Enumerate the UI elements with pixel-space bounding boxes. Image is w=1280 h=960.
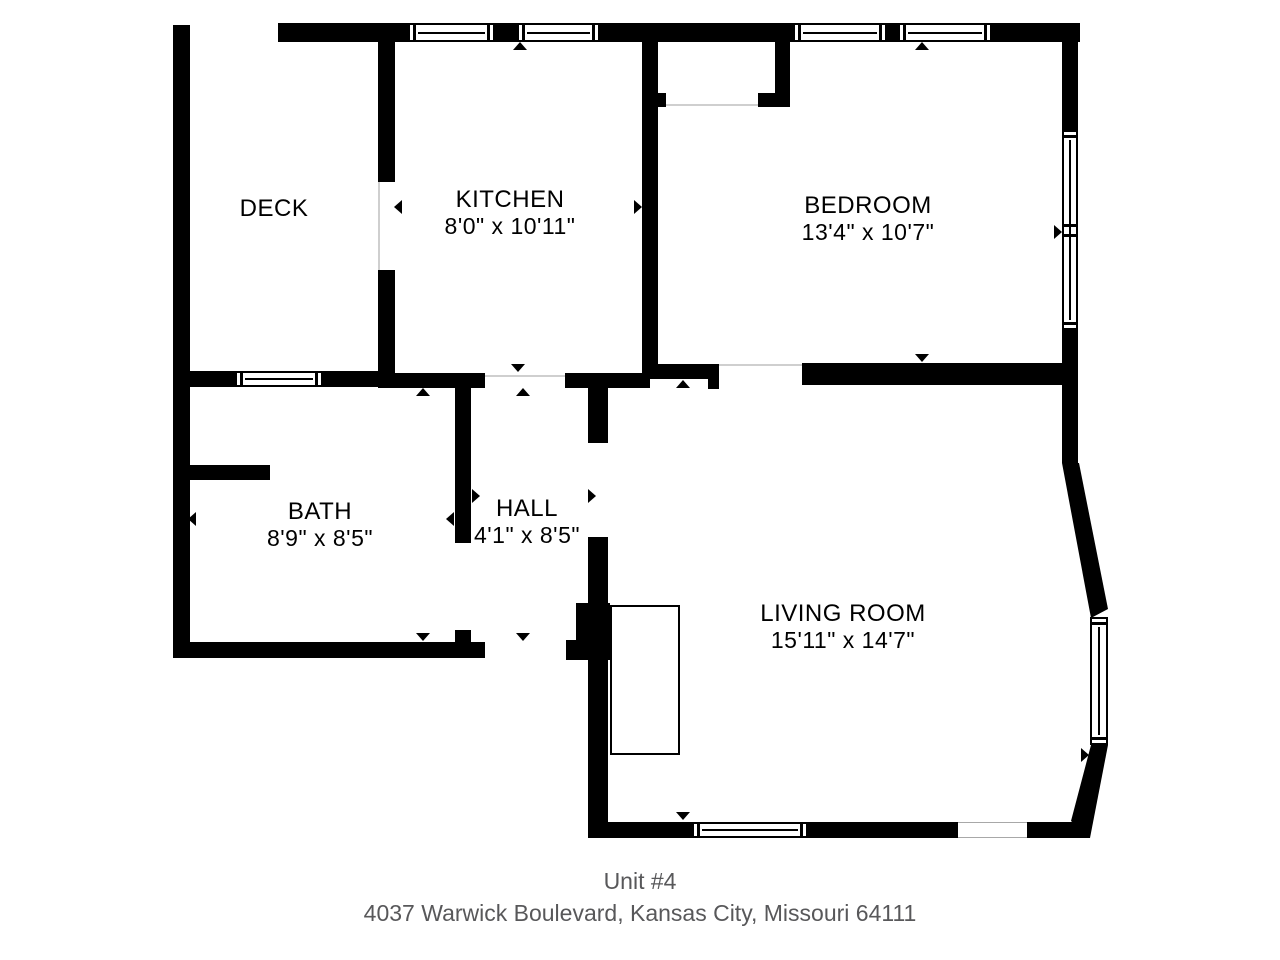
window-frame [702,829,798,831]
wall-segment [278,23,390,42]
room-label-kitchen: KITCHEN8'0" x 10'11" [445,186,576,240]
window-frame [527,32,590,34]
window-frame [1069,140,1071,320]
direction-arrow-l [394,200,402,214]
wall-segment [495,23,517,42]
room-name: KITCHEN [445,186,576,213]
window [235,371,323,387]
wall-segment [565,373,650,388]
direction-arrow-d [516,633,530,641]
wall-segment [173,371,235,387]
direction-arrow-l [188,512,196,526]
direction-arrow-l [649,226,657,240]
room-name: BEDROOM [802,192,935,219]
direction-arrow-r [1081,748,1089,762]
wall-segment [802,363,1078,385]
window-frame [245,378,313,380]
stairs-outline [610,605,680,755]
wall-segment [173,25,190,658]
direction-arrow-u [513,42,527,50]
room-dimensions: 15'11" x 14'7" [760,627,926,654]
window-frame [697,824,700,836]
wall-segment [708,379,719,389]
window [1090,617,1108,745]
wall-segment [600,23,793,42]
direction-arrow-r [588,489,596,503]
direction-arrow-u [915,42,929,50]
wall-segment [1062,42,1078,130]
direction-arrow-d [676,812,690,820]
wall-segment [588,822,692,838]
wall-segment [188,465,270,480]
door-opening-line [666,104,758,106]
room-name: LIVING ROOM [760,600,926,627]
wall-segment [992,23,1080,42]
window-frame [800,824,803,836]
window-frame [1092,622,1106,625]
door-opening-line [378,182,380,270]
wall-segment [758,93,790,107]
room-name: BATH [267,498,373,525]
wall-segment [588,388,608,443]
direction-arrow-d [511,364,525,372]
wall-opening [958,822,1027,838]
window [793,23,887,42]
room-label-bath: BATH8'9" x 8'5" [267,498,373,552]
direction-arrow-r [634,200,642,214]
window-frame [413,25,416,40]
window-frame [1064,224,1076,227]
window-frame [418,32,485,34]
wall-segment [808,822,958,838]
room-name: HALL [474,495,580,522]
wall-segment [642,93,666,107]
window-frame [908,32,982,34]
room-label-bedroom: BEDROOM13'4" x 10'7" [802,192,935,246]
wall-segment [173,642,485,658]
door-opening-line [485,375,565,377]
window-frame [592,25,595,40]
window-frame [1064,322,1076,325]
window-frame [522,25,525,40]
direction-arrow-u [676,380,690,388]
wall-segment [378,42,395,182]
window [1062,130,1078,330]
wall-diagonal [1062,463,1108,618]
angled-walls [0,0,1280,960]
window-frame [903,25,906,40]
window-frame [1092,737,1106,740]
direction-arrow-u [516,388,530,396]
window-frame [1064,234,1076,237]
wall-segment [887,23,898,42]
wall-segment [566,640,588,660]
wall-segment [323,371,385,387]
room-label-living: LIVING ROOM15'11" x 14'7" [760,600,926,654]
window [408,23,495,42]
direction-arrow-u [416,388,430,396]
window [692,822,808,838]
window-frame [803,32,877,34]
window-frame [1064,135,1076,138]
window-frame [1098,627,1100,735]
window [517,23,600,42]
window-frame [487,25,490,40]
address-caption: 4037 Warwick Boulevard, Kansas City, Mis… [0,900,1280,926]
window-frame [879,25,882,40]
caption-block: Unit #4 4037 Warwick Boulevard, Kansas C… [0,868,1280,926]
window-frame [984,25,987,40]
room-dimensions: 8'9" x 8'5" [267,525,373,552]
direction-arrow-d [416,633,430,641]
room-dimensions: 4'1" x 8'5" [474,522,580,549]
window-frame [240,373,243,385]
wall-segment [390,23,408,42]
direction-arrow-l [599,750,607,764]
floor-plan: DECKKITCHEN8'0" x 10'11"BEDROOM13'4" x 1… [0,0,1280,960]
wall-segment [642,40,658,377]
room-label-hall: HALL4'1" x 8'5" [474,495,580,549]
wall-segment [1027,822,1090,838]
wall-segment [378,270,395,375]
unit-caption: Unit #4 [0,868,1280,894]
wall-segment [455,388,471,543]
room-dimensions: 8'0" x 10'11" [445,213,576,240]
direction-arrow-l [446,512,454,526]
wall-segment [642,364,719,379]
direction-arrow-d [915,354,929,362]
direction-arrow-r [1054,225,1062,239]
window-frame [798,25,801,40]
room-name: DECK [240,195,309,222]
door-opening-line [719,364,802,366]
wall-segment [1062,330,1078,463]
window [898,23,992,42]
room-dimensions: 13'4" x 10'7" [802,219,935,246]
wall-segment [588,537,608,822]
window-frame [315,373,318,385]
wall-segment [378,373,485,388]
room-label-deck: DECK [240,195,309,222]
